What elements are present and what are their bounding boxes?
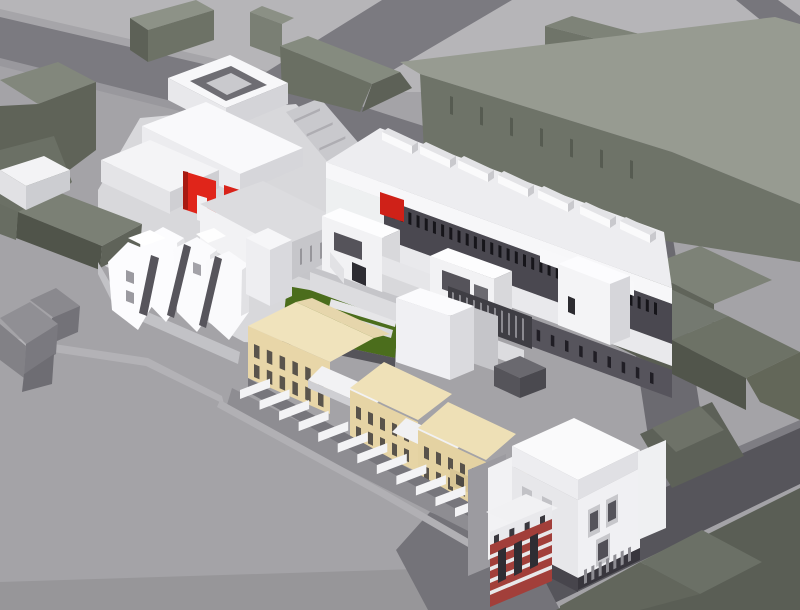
main-clerestory-slits-5 xyxy=(433,221,436,234)
main-slat-slits-10 xyxy=(522,318,524,341)
main-lower-dark-slits-11 xyxy=(636,367,640,379)
tan2-windows-row1-0 xyxy=(356,406,361,420)
main-clerestory-slits-11 xyxy=(482,239,485,252)
main-clerestory-slits-12 xyxy=(490,242,493,255)
g1-base-slits-0 xyxy=(584,569,587,584)
main-clerestory-slits-7 xyxy=(449,227,452,240)
main-clerestory-slits-31 xyxy=(646,299,649,312)
g3-brick-window-1 xyxy=(498,547,506,583)
tan1-windows-row1-3 xyxy=(292,361,298,376)
g3-brick-window-3 xyxy=(530,533,538,569)
context-ne-notches-5 xyxy=(600,149,603,168)
bldg-eastslab-front xyxy=(246,238,270,306)
main-endcap-side xyxy=(610,276,630,345)
main-lower-dark-slits-7 xyxy=(579,345,583,357)
main-lower-dark-slits-10 xyxy=(622,361,626,373)
g1-base-slits-5 xyxy=(621,550,624,565)
main-clerestory-slits-30 xyxy=(638,296,641,309)
context-ne-notches-2 xyxy=(510,117,513,136)
g1-base-slits-4 xyxy=(613,554,616,569)
main-clerestory-slits-3 xyxy=(417,215,420,228)
main-clerestory-slits-4 xyxy=(425,218,428,231)
tan1-windows-row1-2 xyxy=(280,355,286,370)
main-clerestory-slits-32 xyxy=(654,302,657,315)
tan2-windows-row2-1 xyxy=(368,432,373,446)
main-clerestory-slits-15 xyxy=(515,251,518,264)
context-ne-notches-6 xyxy=(630,160,633,179)
main-slat-slits-8 xyxy=(508,313,510,336)
tan2-windows-row2-3 xyxy=(392,443,397,457)
main-clerestory-slits-8 xyxy=(458,230,461,243)
tan1-windows-row1-0 xyxy=(254,344,260,359)
tan1-windows-row2-2 xyxy=(280,375,286,390)
tan3-windows-row1-0 xyxy=(424,446,429,460)
red-feature-wall-edge xyxy=(183,171,188,210)
tan1-windows-row2-3 xyxy=(292,381,298,396)
g1-wing-right xyxy=(638,440,666,540)
g1-base-slits-6 xyxy=(628,547,631,562)
tan2-windows-row1-1 xyxy=(368,412,373,426)
main-clerestory-slits-16 xyxy=(523,254,526,267)
tan2-windows-row1-2 xyxy=(380,417,385,431)
main-endcap-door xyxy=(568,296,575,315)
main-slat-slits-7 xyxy=(501,310,503,333)
main-lower-dark-slits-6 xyxy=(565,340,569,352)
g1-base-slits-1 xyxy=(591,565,594,580)
bldg-mid-side-slits-1 xyxy=(300,248,302,265)
g3-brick-window-2 xyxy=(514,540,522,576)
main-lower-dark-slits-5 xyxy=(551,335,555,347)
bldg-eastslab-side xyxy=(270,240,292,306)
context-ne-notches-1 xyxy=(480,107,483,126)
site-model-svg xyxy=(0,0,800,610)
main-lower-dark-slits-8 xyxy=(593,351,597,363)
g1-base-slits-2 xyxy=(599,561,602,576)
main-clerestory-slits-10 xyxy=(474,236,477,249)
context-ne-notches-4 xyxy=(570,139,573,158)
context-ne-notches-3 xyxy=(540,128,543,147)
main-clerestory-slits-6 xyxy=(441,224,444,237)
tan1-windows-row2-0 xyxy=(254,364,260,379)
main-clerestory-slits-14 xyxy=(507,248,510,261)
main-clerestory-slits-2 xyxy=(408,212,411,225)
main-lower-dark-slits-12 xyxy=(650,372,654,384)
context-ne-notches-0 xyxy=(450,96,453,115)
bldg-mid-side-slits-2 xyxy=(310,245,312,262)
bldg-mid-side-slits-3 xyxy=(320,242,322,259)
main-clerestory-slits-13 xyxy=(498,245,501,258)
g1-base-slits-3 xyxy=(606,558,609,573)
main-clerestory-slits-9 xyxy=(466,233,469,246)
tan1-windows-row1-1 xyxy=(267,350,273,365)
tan3-windows-row1-1 xyxy=(436,452,441,466)
main-lower-dark-slits-4 xyxy=(537,329,541,341)
site-model xyxy=(0,0,800,610)
main-clerestory-slits-17 xyxy=(531,257,534,270)
main-lower-dark-slits-9 xyxy=(608,356,612,368)
cube-side xyxy=(450,306,474,380)
main-slat-slits-9 xyxy=(515,315,517,338)
